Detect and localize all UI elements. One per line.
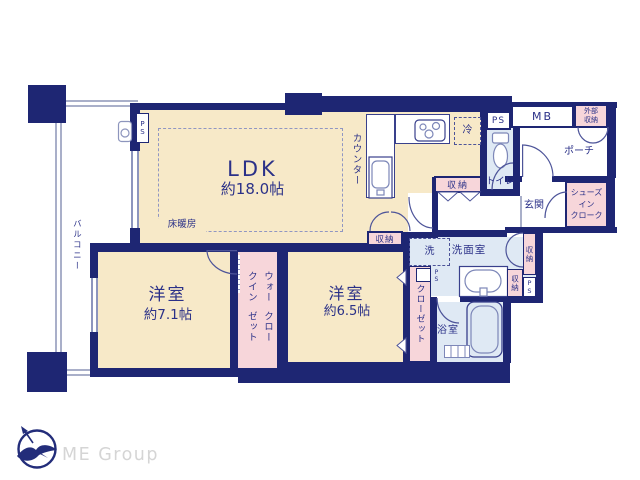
balcony-railing-top	[62, 100, 138, 107]
mb-label: MB	[532, 110, 553, 123]
ps-label-washroom-small: PS	[431, 268, 440, 284]
wic-label-line2: クローゼット	[241, 311, 275, 351]
bedroom-right-name: 洋室	[310, 284, 383, 304]
me-group-logo-icon	[14, 423, 60, 471]
hall-storage-box: 収納	[434, 176, 482, 193]
laundry-label: 洗	[425, 246, 435, 258]
wall	[608, 176, 615, 233]
front-door-arc	[522, 145, 553, 177]
refrigerator-label: 冷	[463, 125, 473, 137]
sic-label-2: イン	[579, 199, 595, 211]
ldk-name: LDK	[200, 157, 305, 181]
washroom-storage-box-mid: 収納	[507, 269, 523, 297]
outdoor-storage-box: 外部 収納	[574, 104, 608, 128]
balcony-railing-left	[55, 106, 62, 376]
ldk-corridor-door-arc	[409, 197, 433, 228]
bedroom-left-door-arc	[207, 250, 237, 274]
floor-plan: 冷 洗 MB 外部 収納 シューズ イン クローク 収納	[0, 0, 640, 480]
sic-label-1: シューズ	[571, 187, 603, 199]
ps-box-washroom-small	[416, 268, 431, 282]
washroom-storage-label-mid: 収納	[510, 275, 521, 292]
wall-pillar-bottom-left	[27, 352, 67, 392]
hall-storage-label: 収納	[447, 178, 469, 191]
wall-pillar-top	[285, 93, 322, 115]
washroom-storage-box-top: 収納	[523, 233, 536, 275]
mb-box: MB	[511, 105, 574, 128]
ps-label-ldk: PS	[139, 120, 147, 136]
toilet-label: トイレ	[483, 176, 517, 189]
outdoor-storage-label-1: 外部	[584, 107, 598, 116]
bedroom-right-area: 約6.5帖	[308, 305, 386, 320]
bathtub-icon	[466, 301, 503, 358]
ps-label-kitchen: PS	[492, 116, 505, 126]
balcony-label: バルコニー	[69, 213, 82, 277]
closet-label: クローゼット	[414, 284, 427, 344]
ldk-area: 約18.0帖	[195, 181, 310, 199]
stove-icon	[414, 119, 446, 142]
bathroom-door-arc	[437, 298, 459, 323]
wall	[277, 245, 288, 368]
ps-box-washroom-right: PS	[523, 277, 536, 297]
hall-storage-bifold-icon	[438, 192, 480, 202]
refrigerator-space: 冷	[454, 117, 481, 145]
floor-heating-label: 床暖房	[158, 219, 206, 232]
washroom-door-arcs	[506, 233, 523, 267]
sic-label-3: クローク	[571, 210, 603, 222]
bathroom-label: 浴室	[428, 324, 468, 338]
kitchen-sink-icon	[368, 156, 393, 199]
wic-label-line1: ウォークイン	[241, 271, 275, 311]
bedroom-left-name: 洋室	[130, 285, 205, 307]
wic-label: ウォークインクローゼット	[241, 271, 275, 351]
ps-box-ldk: PS	[136, 113, 149, 143]
bedroom-left-area: 約7.1帖	[127, 308, 209, 324]
wall	[607, 102, 616, 178]
washroom-storage-label-top: 収納	[524, 246, 535, 263]
ldk-french-door-arcs	[370, 212, 410, 232]
ps-box-kitchen: PS	[486, 111, 511, 130]
bedroom-right-door-marker-bottom	[397, 338, 406, 353]
ldk-storage-label: 収納	[375, 233, 394, 245]
ldk-window	[131, 151, 139, 229]
bedroom-left-window	[91, 278, 98, 333]
porch-label: ポーチ	[558, 145, 600, 159]
wall	[437, 230, 507, 237]
wall	[536, 228, 543, 302]
wall	[238, 368, 288, 383]
wall	[130, 228, 140, 252]
bath-counter-icon	[444, 345, 470, 358]
wall	[503, 297, 511, 363]
outdoor-storage-door-arcs	[578, 127, 608, 143]
outdoor-storage-label-2: 収納	[584, 116, 598, 125]
vanity-sink-icon	[459, 266, 508, 297]
balcony-faucet-icon	[118, 121, 132, 142]
wall-pillar-top-left	[28, 85, 66, 123]
me-group-brand: ME Group	[62, 444, 172, 466]
wall	[93, 368, 238, 377]
wall	[480, 189, 520, 196]
genkan-label: 玄関	[519, 199, 549, 213]
bedroom-right-door-marker-top	[397, 270, 406, 285]
wall	[90, 243, 98, 278]
washroom-label: 洗面室	[434, 243, 504, 257]
ldk-storage-box: 収納	[367, 231, 403, 246]
wall	[130, 103, 292, 110]
wall	[93, 243, 410, 252]
shoes-in-cloak-box: シューズ イン クローク	[565, 181, 608, 228]
wall	[288, 362, 510, 383]
ps-label-washroom-right: PS	[526, 279, 534, 295]
counter-label: カウンター	[348, 129, 362, 189]
